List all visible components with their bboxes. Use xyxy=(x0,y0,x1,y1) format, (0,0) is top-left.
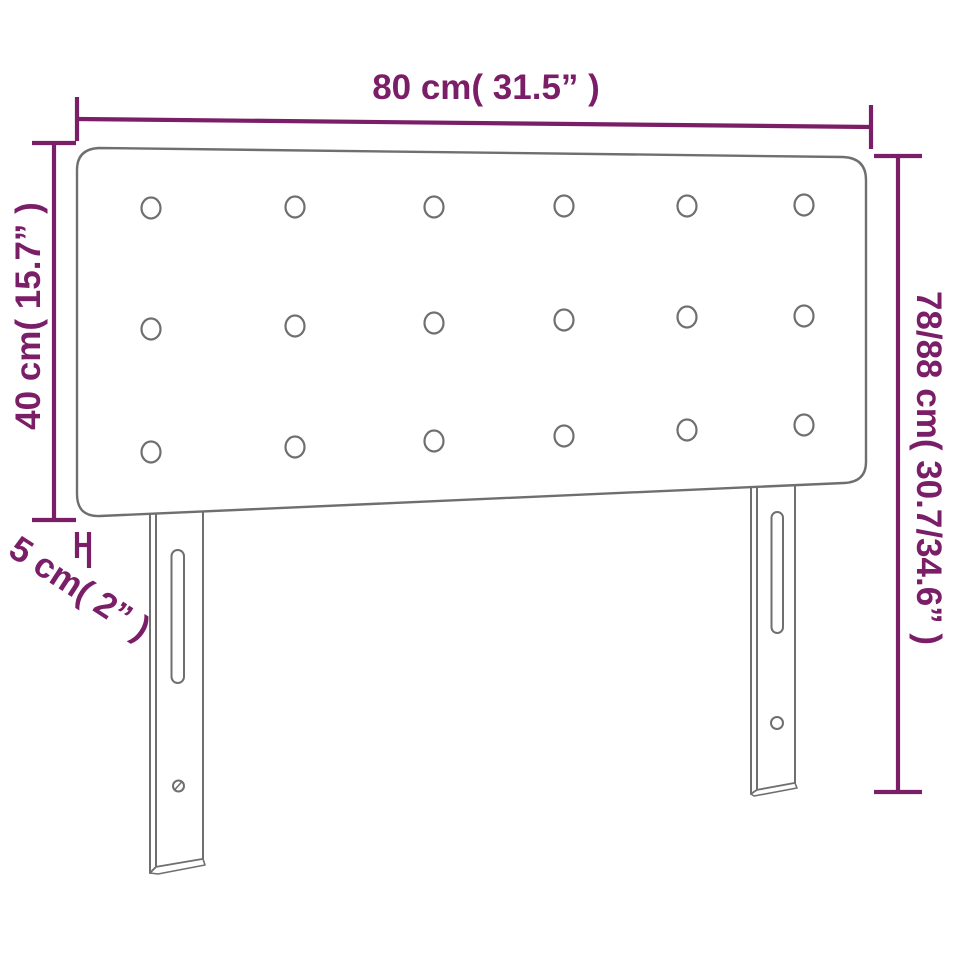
height-left-dimension-label: 40 cm( 15.7” ) xyxy=(9,202,48,430)
headboard-outline xyxy=(77,148,866,516)
leg-hardware xyxy=(172,512,784,792)
right-leg-screw-hole xyxy=(771,717,783,729)
thickness-dimension-bracket xyxy=(77,532,89,568)
height-right-dimension-label: 78/88 cm( 30.7/34.6” ) xyxy=(909,291,948,645)
width-dimension-label: 80 cm( 31.5” ) xyxy=(372,68,600,107)
left-leg-slot xyxy=(172,550,185,683)
diagram-canvas: 80 cm( 31.5” ) 40 cm( 15.7” ) 5 cm( 2” )… xyxy=(0,0,955,955)
headboard-dimension-diagram: 80 cm( 31.5” ) 40 cm( 15.7” ) 5 cm( 2” )… xyxy=(0,0,955,955)
right-leg-slot xyxy=(772,512,784,633)
